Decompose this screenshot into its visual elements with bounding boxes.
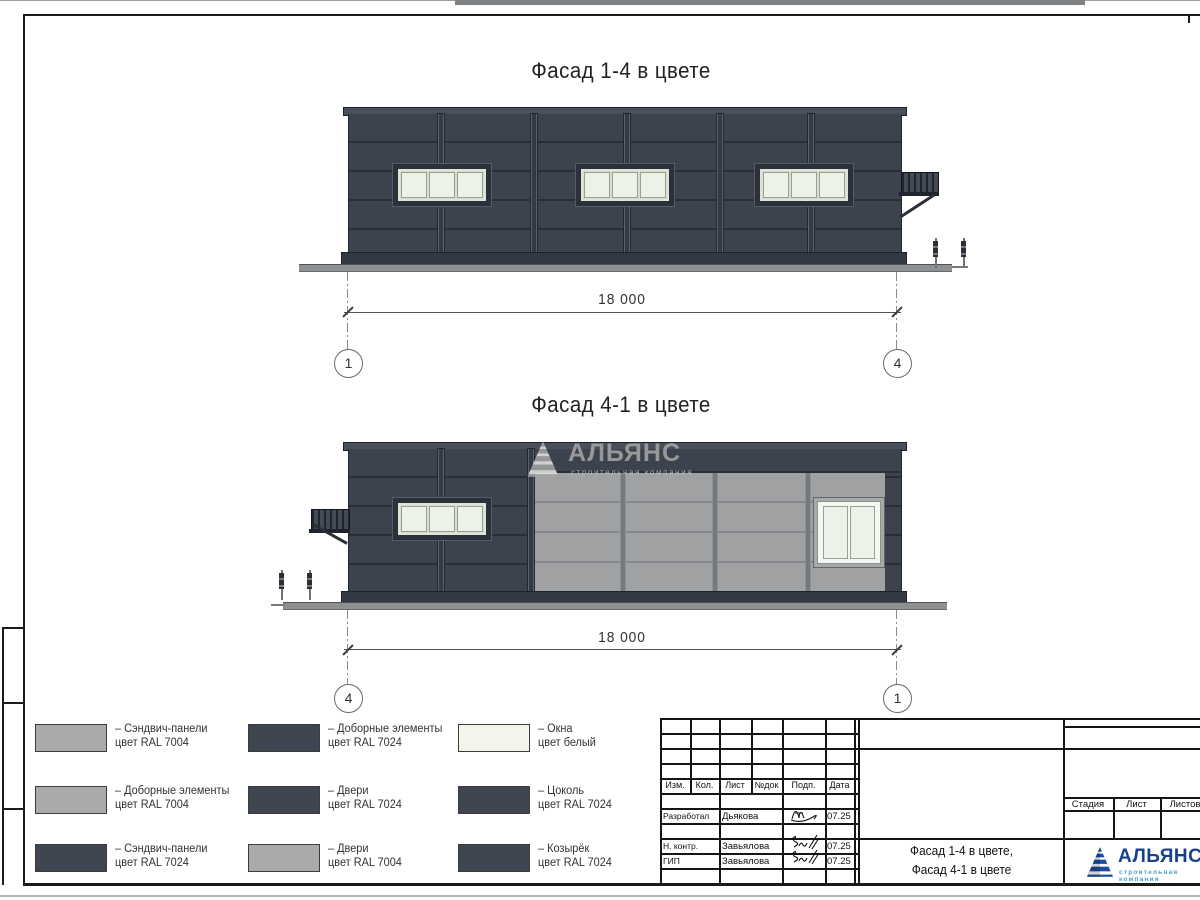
title-block-line — [660, 733, 858, 735]
window-pane — [457, 172, 483, 198]
title-block-line — [660, 868, 858, 870]
panel-seam — [717, 114, 723, 252]
window-glazing — [400, 505, 484, 533]
window-glazing — [400, 171, 484, 199]
window-pane — [791, 172, 817, 198]
title-block-line — [782, 718, 784, 885]
legend-item: – Дверицвет RAL 7024 — [328, 785, 402, 812]
window-pane — [823, 506, 848, 559]
sheet-bottom-edge — [0, 895, 1200, 897]
title-block-line — [660, 763, 858, 765]
legend-label: цвет RAL 7024 — [328, 737, 442, 751]
window-pane — [819, 172, 845, 198]
legend-label: – Окна — [538, 723, 596, 737]
facade2-title: Фасад 4-1 в цвете — [458, 392, 784, 418]
post-marker — [307, 573, 312, 589]
frame-left — [23, 14, 25, 885]
title-block-line — [660, 793, 858, 795]
title-block-line — [660, 718, 662, 885]
window-glazing — [762, 171, 846, 199]
doc-title-line2: Фасад 4-1 в цвете — [865, 861, 1058, 880]
tb-name: Дьякова — [722, 811, 758, 822]
dimension-line — [344, 649, 901, 650]
axis-marker-1: 1 — [334, 349, 363, 378]
legend-label: цвет RAL 7024 — [328, 799, 402, 813]
tb-header-kol: Кол. — [690, 780, 719, 790]
canopy-strut — [900, 193, 935, 217]
title-block-line — [660, 838, 1200, 840]
tb-date: 07.25 — [827, 856, 851, 867]
legend-label: цвет RAL 7024 — [115, 857, 207, 871]
legend-label: цвет RAL 7004 — [115, 799, 229, 813]
legend-item: – Козырёкцвет RAL 7024 — [538, 843, 612, 870]
window-pane — [584, 172, 610, 198]
legend-swatch — [458, 786, 530, 814]
title-block-line — [660, 853, 858, 855]
title-block-line — [660, 718, 1200, 720]
dimension-line — [344, 312, 901, 313]
window-frame — [817, 501, 881, 564]
title-block-line — [854, 718, 856, 885]
legend-swatch — [35, 844, 107, 872]
legend-label: цвет белый — [538, 737, 596, 751]
window-pane — [640, 172, 666, 198]
panel-seam — [805, 473, 811, 591]
title-block-line — [1063, 810, 1200, 812]
window-pane — [429, 172, 455, 198]
facade2-ground-slab — [283, 602, 947, 610]
title-block-line — [858, 718, 860, 885]
panel-seam — [620, 473, 626, 591]
frame-top — [23, 14, 1200, 16]
title-block-line — [660, 808, 858, 810]
legend-label: цвет RAL 7004 — [115, 737, 207, 751]
tb-role: Н. контр. — [663, 841, 698, 851]
signature-icon — [788, 848, 822, 868]
margin-box-line — [2, 627, 24, 629]
legend-swatch — [248, 724, 320, 752]
signature-icon — [788, 802, 822, 824]
facade1-window-1 — [393, 164, 491, 206]
axis-marker-4: 4 — [334, 684, 363, 713]
legend-label: – Сэндвич-панели — [115, 723, 207, 737]
legend-item: – Окнацвет белый — [538, 723, 596, 750]
tb-name: Завьялова — [722, 856, 769, 867]
window-pane — [457, 506, 483, 532]
watermark-subtitle: строительная компания — [571, 468, 693, 477]
tb-role: ГИП — [663, 856, 680, 866]
legend-swatch — [458, 844, 530, 872]
legend-swatch — [35, 724, 107, 752]
margin-box-line — [2, 808, 24, 810]
title-block-line — [1063, 726, 1200, 728]
logo-triangle-icon — [1086, 845, 1114, 879]
legend-label: – Доборные элементы — [115, 785, 229, 799]
frame-bottom — [23, 883, 1200, 886]
axis-marker-4: 4 — [883, 349, 912, 378]
tb-name: Завьялова — [722, 841, 769, 852]
legend-label: – Козырёк — [538, 843, 612, 857]
window-pane — [850, 506, 875, 559]
legend-label: цвет RAL 7024 — [538, 799, 612, 813]
tb-header-stage: Стадия — [1063, 799, 1113, 810]
logo-subtitle: строительная компания — [1119, 869, 1200, 883]
legend-label: – Двери — [328, 843, 402, 857]
legend-swatch — [458, 724, 530, 752]
legend-label: – Доборные элементы — [328, 723, 442, 737]
frame-right-tick — [1188, 14, 1190, 23]
tb-date: 07.25 — [827, 811, 851, 822]
doc-title-line1: Фасад 1-4 в цвете, — [865, 842, 1058, 861]
axis-marker-1: 1 — [883, 684, 912, 713]
tb-header-list: Лист — [719, 780, 751, 790]
facade1-ground-slab — [299, 264, 952, 272]
window-pane — [401, 172, 427, 198]
legend-label: цвет RAL 7004 — [328, 857, 402, 871]
window-pane — [612, 172, 638, 198]
logo-text: АЛЬЯНС — [1118, 846, 1200, 868]
tb-header-sheet: Лист — [1113, 799, 1160, 810]
drawing-sheet: Фасад 1-4 в цвете 18 000 1 4 Фасад 4-1 в… — [0, 0, 1200, 900]
tb-date: 07.25 — [827, 841, 851, 852]
legend-label: цвет RAL 7024 — [538, 857, 612, 871]
post-marker — [933, 241, 938, 257]
legend-swatch — [35, 786, 107, 814]
watermark-triangle-icon — [524, 440, 562, 478]
title-block-line — [660, 823, 858, 825]
margin-box-line — [2, 702, 24, 704]
legend-swatch — [248, 786, 320, 814]
legend-item: – Доборные элементыцвет RAL 7024 — [328, 723, 442, 750]
ground-line-ext — [952, 266, 968, 268]
legend-item: – Сэндвич-панелицвет RAL 7004 — [115, 723, 207, 750]
window-pane — [429, 506, 455, 532]
window-glazing — [583, 171, 667, 199]
facade1-window-2 — [576, 164, 674, 206]
facade2-dimension-label: 18 000 — [567, 629, 677, 646]
tb-header-sheets: Листов — [1160, 799, 1200, 810]
facade1-window-3 — [755, 164, 853, 206]
legend-swatch — [248, 844, 320, 872]
post-marker — [279, 573, 284, 589]
legend-label: – Двери — [328, 785, 402, 799]
facade2-window-left — [393, 498, 491, 540]
panel-seam — [712, 473, 718, 591]
window-pane — [763, 172, 789, 198]
top-gray-bar — [455, 0, 1085, 5]
legend-label: – Сэндвич-панели — [115, 843, 207, 857]
post-marker — [961, 241, 966, 257]
watermark-text: АЛЬЯНС — [568, 439, 681, 468]
legend-item: – Сэндвич-панелицвет RAL 7024 — [115, 843, 207, 870]
legend-item: – Дверицвет RAL 7004 — [328, 843, 402, 870]
tb-role: Разработал — [663, 811, 709, 821]
tb-header-ndok: №док — [751, 780, 782, 790]
ground-line-ext — [271, 604, 285, 606]
facade1-title: Фасад 1-4 в цвете — [458, 58, 784, 84]
facade2-window-right — [813, 497, 885, 568]
tb-header-podp: Подп. — [782, 780, 825, 790]
title-block-line — [719, 718, 721, 885]
legend-label: – Цоколь — [538, 785, 612, 799]
margin-column-line — [2, 627, 4, 885]
tb-header-izm: Изм. — [660, 780, 690, 790]
doc-title: Фасад 1-4 в цвете, Фасад 4-1 в цвете — [865, 842, 1058, 880]
title-block-line — [660, 748, 1200, 750]
window-pane — [401, 506, 427, 532]
tb-header-data: Дата — [825, 780, 854, 790]
legend-item: – Цокольцвет RAL 7024 — [538, 785, 612, 812]
legend-item: – Доборные элементыцвет RAL 7004 — [115, 785, 229, 812]
panel-seam — [531, 114, 537, 252]
facade1-dimension-label: 18 000 — [567, 291, 677, 308]
